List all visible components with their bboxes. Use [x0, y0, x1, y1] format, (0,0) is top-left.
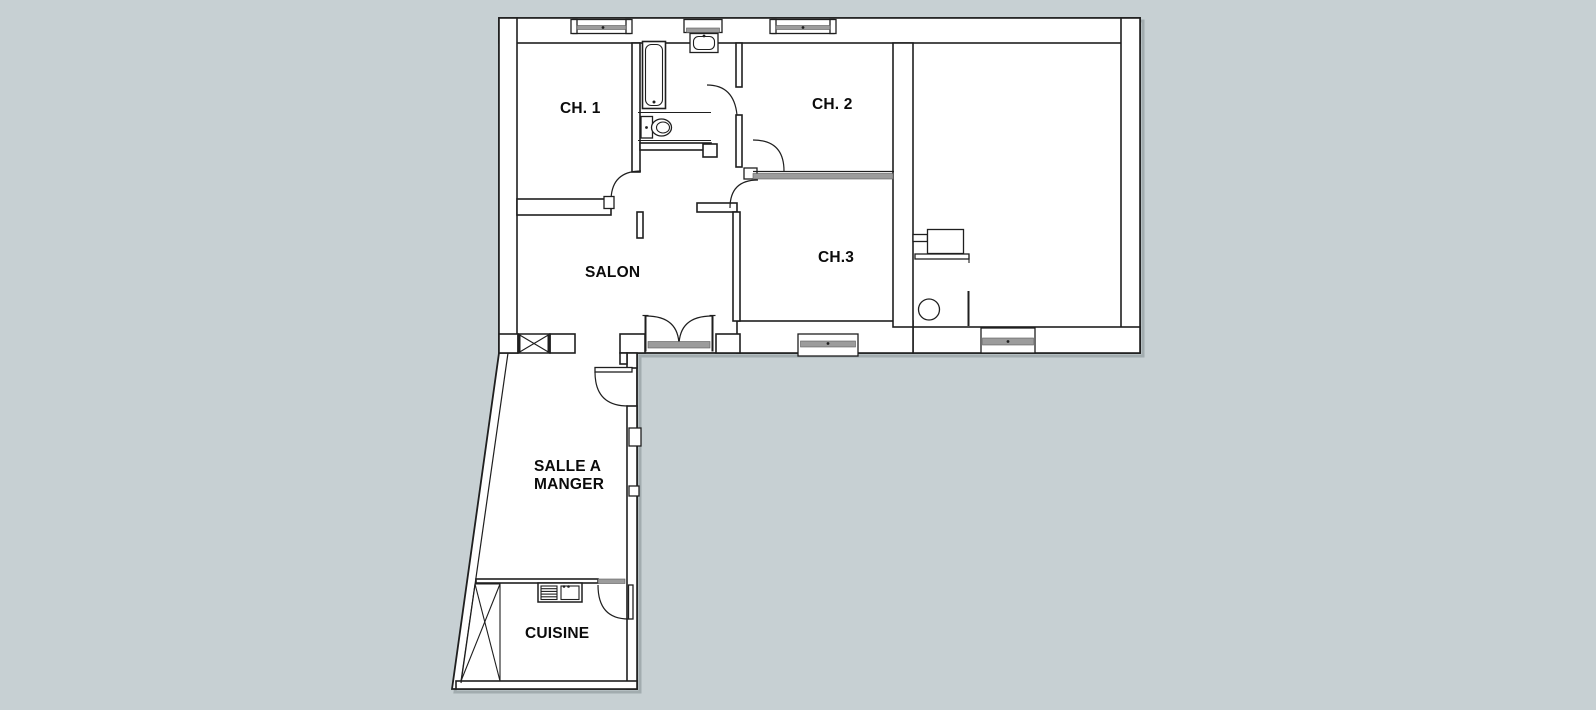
kitchen-sink-icon	[538, 583, 582, 602]
floor-plan-canvas: CH. 1 CH. 2 CH.3 SALON SALLE A MANGER CU…	[0, 0, 1596, 710]
wall-bath-bottom	[640, 143, 711, 150]
stool-icon	[919, 299, 940, 320]
doorway-salon-dining	[576, 349, 619, 357]
wall-segment	[620, 353, 627, 364]
wall-bath-step	[703, 144, 717, 157]
washbasin-icon	[690, 34, 718, 53]
wall-segment	[499, 334, 518, 353]
window-icon	[684, 20, 722, 33]
wall-hall-stub	[697, 203, 737, 212]
wall-mid-thick	[893, 43, 913, 327]
entry-door-icon	[981, 328, 1035, 353]
wall-bath-right-lower	[736, 115, 742, 167]
wall-vent	[629, 486, 639, 496]
wall-left	[499, 18, 517, 353]
wall-wing-right-upper	[627, 353, 637, 368]
wall-segment	[620, 334, 645, 353]
window-icon	[571, 20, 632, 34]
wall-segment	[716, 334, 740, 353]
wall-bath-right-upper	[736, 43, 742, 87]
bathtub-icon	[643, 42, 666, 109]
wall-ch1-bathroom	[632, 43, 640, 172]
room-label-salle-a-manger-line2: MANGER	[534, 476, 604, 493]
partition-panel	[753, 174, 893, 180]
window-icon	[770, 20, 836, 34]
wall-right	[1121, 18, 1140, 353]
wall-segment	[550, 334, 575, 353]
wall-salon-stub	[637, 212, 643, 238]
room-label-salle-a-manger-line1: SALLE A	[534, 458, 601, 475]
room-label-ch1: CH. 1	[560, 100, 601, 117]
room-label-ch2: CH. 2	[812, 96, 853, 113]
floor-plan-svg: CH. 1 CH. 2 CH.3 SALON SALLE A MANGER CU…	[0, 0, 1596, 710]
wall-vent	[629, 428, 641, 446]
chimney-flue-icon	[518, 334, 550, 353]
window-icon	[798, 334, 858, 356]
room-label-ch3: CH.3	[818, 249, 854, 266]
wall-salon-top	[517, 199, 611, 215]
door-jamb	[604, 197, 614, 209]
wall-ch3-left	[733, 212, 740, 321]
room-label-salon: SALON	[585, 264, 640, 281]
wall-kitchen-bottom	[456, 681, 637, 689]
room-label-cuisine: CUISINE	[525, 625, 589, 642]
wall-wing-right-lower	[627, 406, 637, 689]
